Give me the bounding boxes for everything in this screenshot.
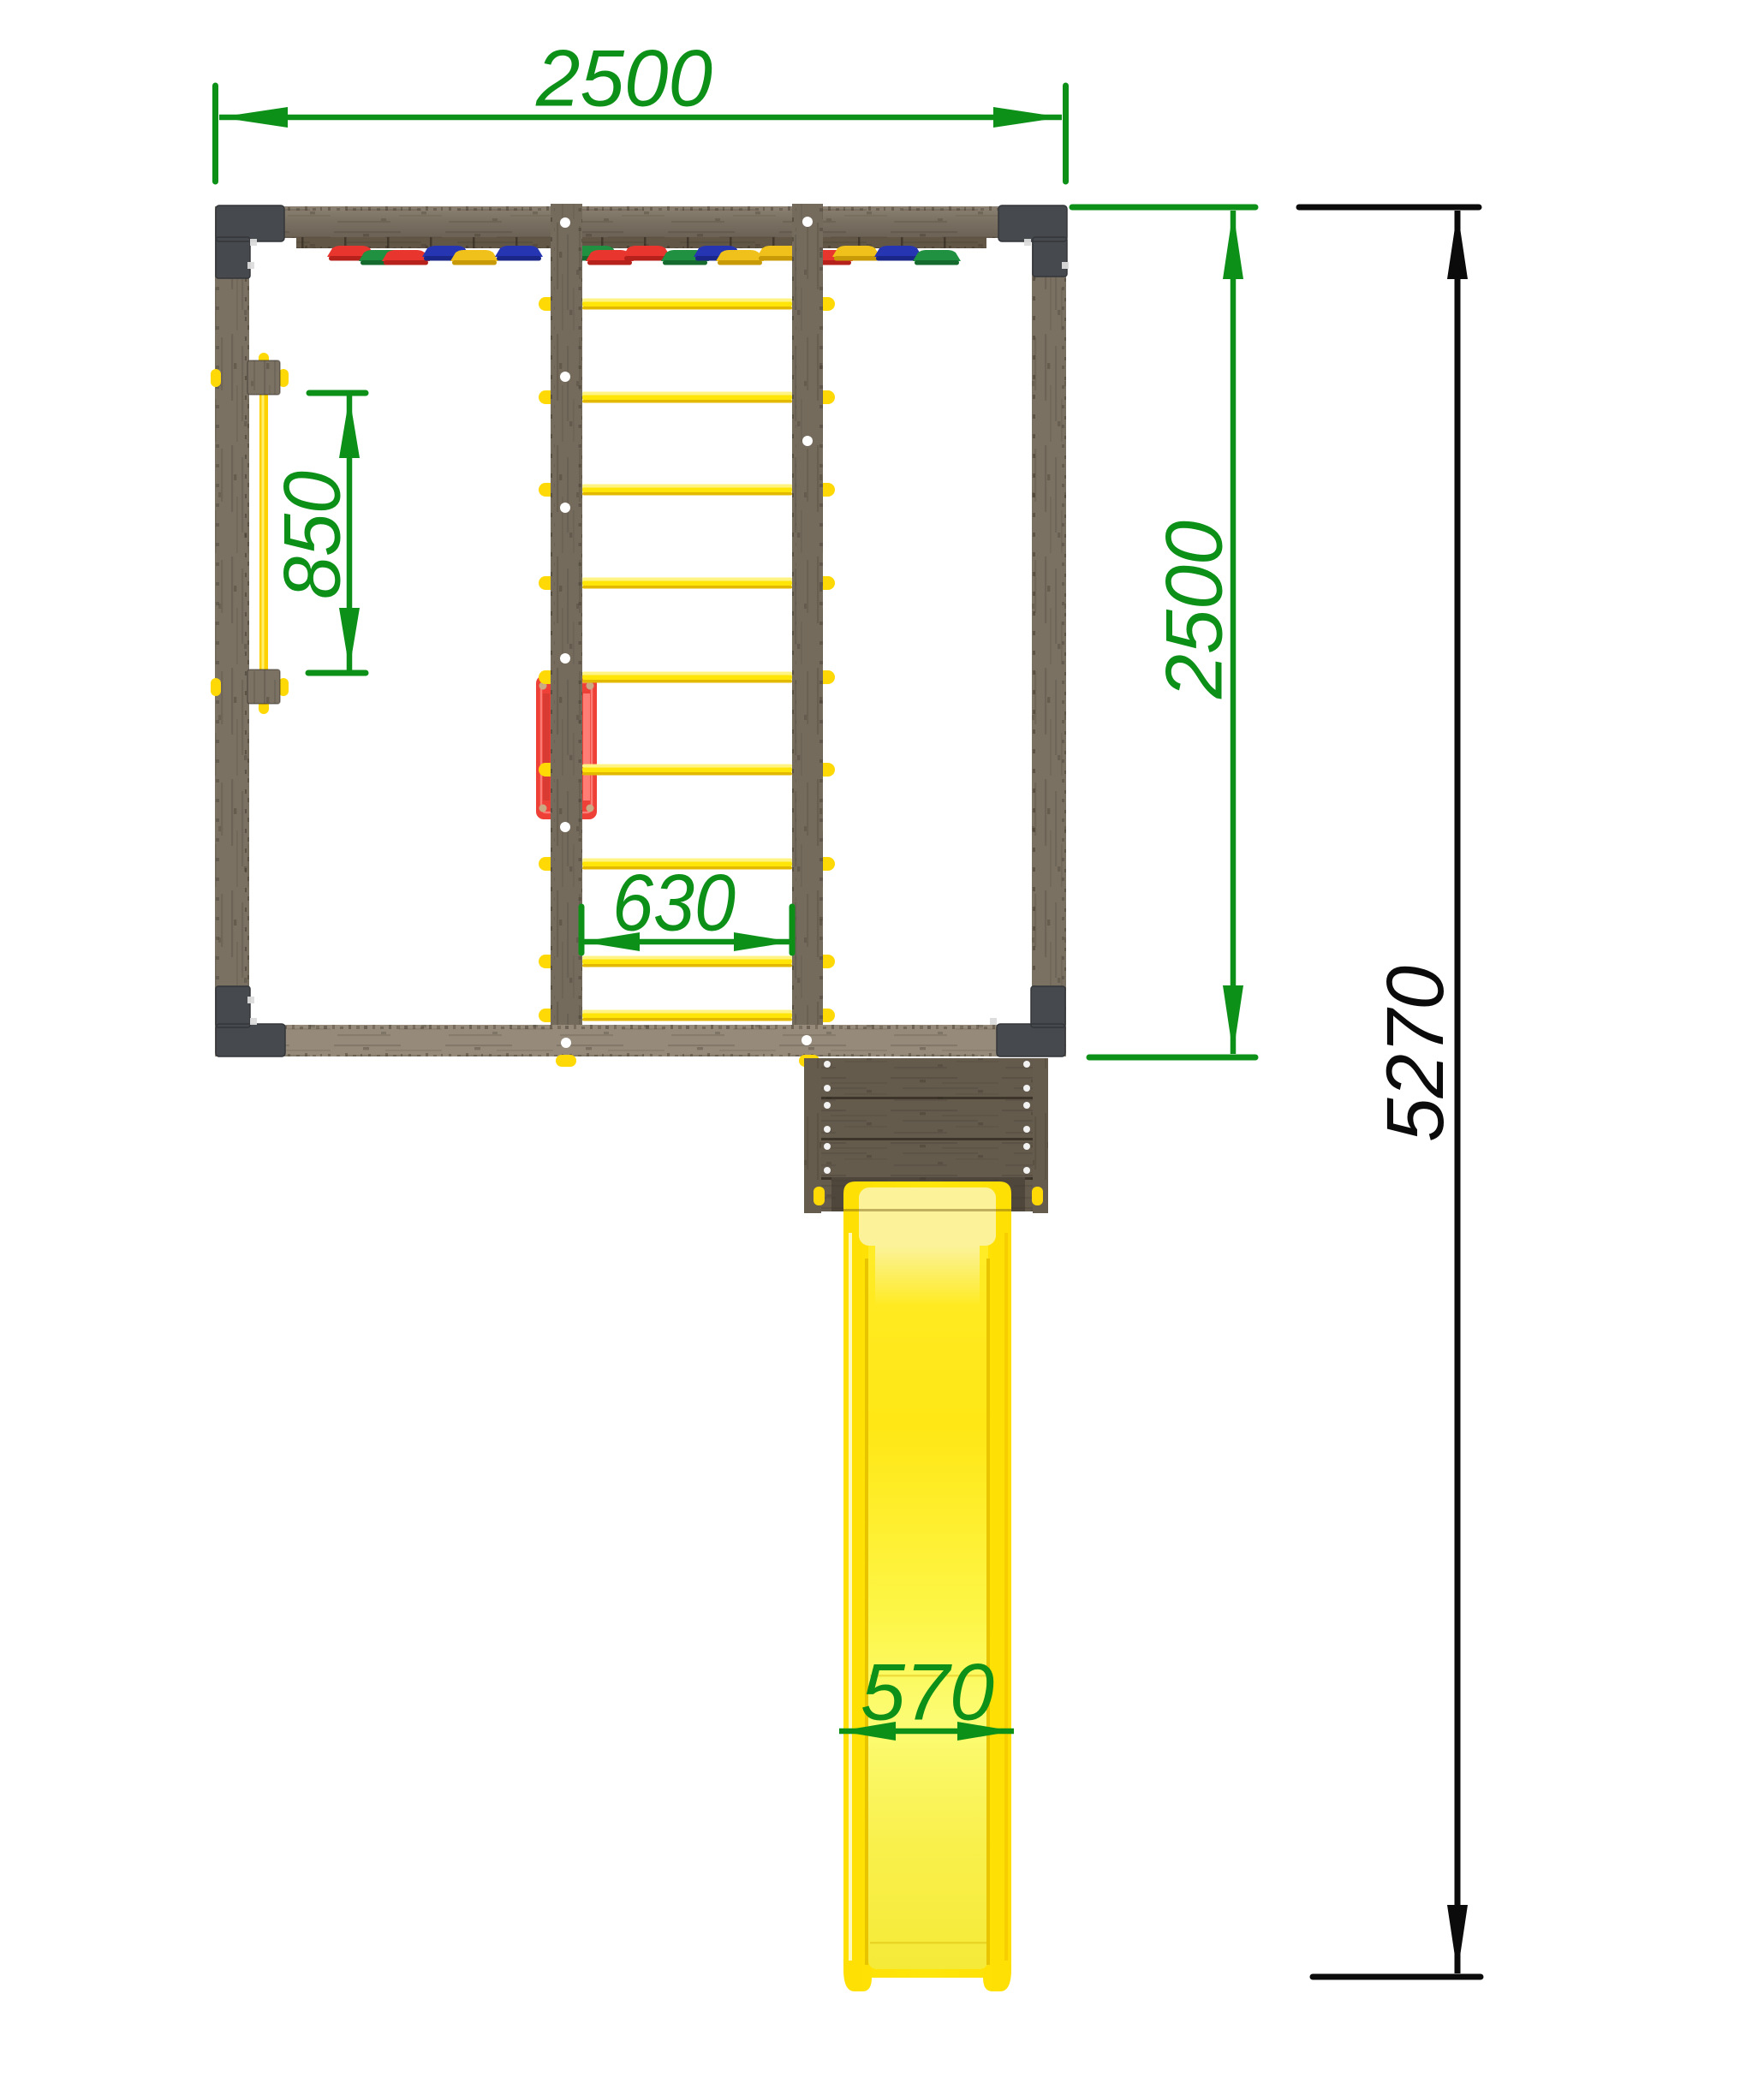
svg-text:850: 850 [267, 471, 357, 599]
svg-text:630: 630 [612, 858, 736, 948]
svg-text:2500: 2500 [1149, 521, 1239, 699]
svg-text:5270: 5270 [1370, 966, 1461, 1142]
svg-text:570: 570 [861, 1647, 994, 1737]
svg-text:2500: 2500 [535, 33, 712, 123]
